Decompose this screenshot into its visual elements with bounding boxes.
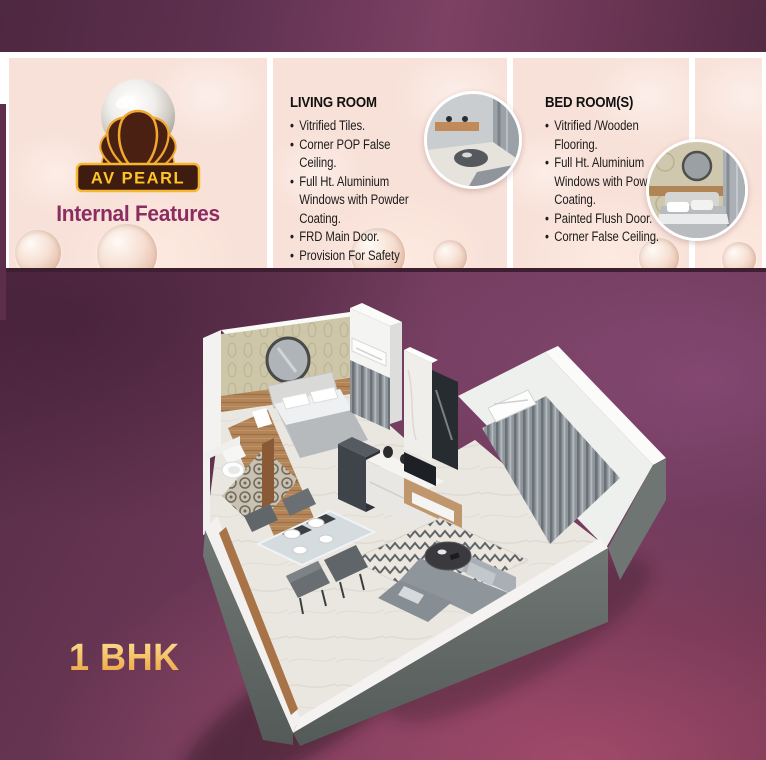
living-room-photo [424, 91, 522, 189]
logo-badge: AV PEARL [77, 164, 199, 191]
coffee-table [425, 542, 471, 570]
central-wall-group [350, 303, 402, 430]
feature-item: •Vitrified Tiles. [290, 117, 426, 136]
features-strip: AV PEARL Internal Features LIVING ROOM •… [0, 52, 766, 268]
bullet-icon: • [290, 247, 294, 266]
pearl-decoration [97, 224, 157, 268]
feature-item: •Full Ht. Aluminium Windows with Powder … [290, 173, 426, 229]
feature-item: •Corner False Ceiling. [545, 228, 681, 247]
living-room-feature-list: •Vitrified Tiles. •Corner POP False Ceil… [290, 117, 426, 268]
bullet-icon: • [545, 228, 549, 247]
bullet-icon: • [290, 117, 294, 136]
internal-features-heading: Internal Features [15, 201, 260, 227]
logo-text: AV PEARL [91, 170, 185, 188]
pillar-group [404, 347, 462, 530]
bhk-label: 1 BHK [69, 639, 180, 677]
left-border-edge [0, 104, 6, 320]
coffee-maker [383, 446, 393, 458]
bullet-icon: • [290, 173, 294, 192]
logo-panel: AV PEARL Internal Features [9, 58, 267, 268]
feature-item: •FRD Main Door. [290, 228, 426, 247]
top-border-band [0, 0, 766, 52]
bed-room-title: BED ROOM(S) [545, 94, 672, 111]
bullet-icon: • [290, 228, 294, 247]
separator-line [0, 268, 766, 272]
pearl-decoration [15, 230, 61, 268]
bullet-icon: • [545, 210, 549, 229]
feature-item: •Provision For Safety Door. [290, 247, 426, 269]
bullet-icon: • [290, 136, 294, 155]
bullet-icon: • [545, 117, 549, 136]
bedroom-photo [646, 139, 748, 241]
feature-item: •Corner POP False Ceiling. [290, 136, 426, 173]
pearl-decoration [722, 242, 756, 268]
wood-door [262, 438, 274, 508]
av-pearl-logo: AV PEARL [53, 64, 223, 214]
feature-item: •Vitrified /Wooden Flooring. [545, 117, 681, 154]
bullet-icon: • [545, 154, 549, 173]
